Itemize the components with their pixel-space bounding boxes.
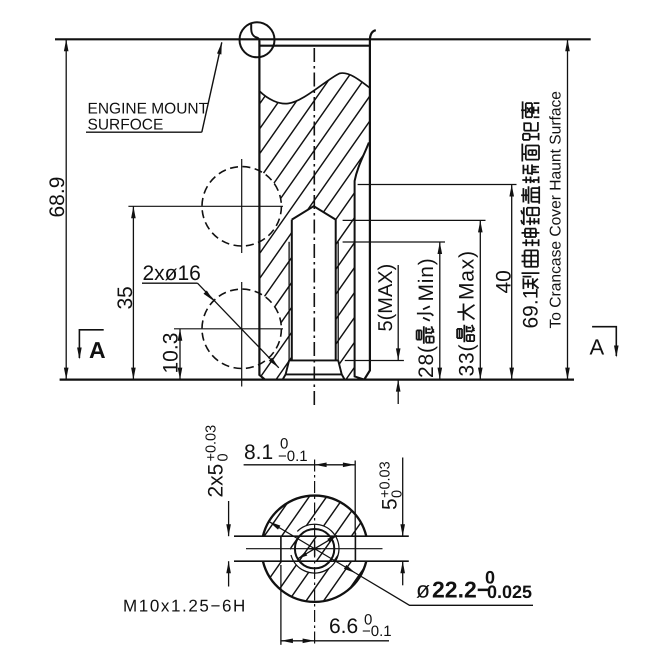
svg-text:0.025: 0.025 <box>487 582 532 602</box>
svg-text:ENGINE MOUNT: ENGINE MOUNT <box>88 101 209 118</box>
svg-text:69.1: 69.1 <box>520 288 543 329</box>
svg-text:ø: ø <box>416 577 430 603</box>
svg-text:0: 0 <box>216 453 232 461</box>
svg-text:A: A <box>590 335 605 360</box>
svg-text:To Crancase Cover Haunt Surfac: To Crancase Cover Haunt Surface <box>548 91 565 328</box>
svg-text:35: 35 <box>114 286 137 309</box>
svg-text:5(MAX): 5(MAX) <box>375 264 397 332</box>
svg-text:33(: 33( <box>455 344 478 377</box>
svg-text:SURFOCE: SURFOCE <box>88 117 164 134</box>
svg-text:2xø16: 2xø16 <box>143 262 201 285</box>
svg-text:A: A <box>89 337 106 363</box>
svg-text:Max): Max) <box>455 250 478 300</box>
svg-text:Min): Min) <box>415 257 438 301</box>
svg-text:−0.1: −0.1 <box>278 448 308 465</box>
svg-text:−0.1: −0.1 <box>362 623 392 640</box>
svg-text:M10x1.25−6H: M10x1.25−6H <box>123 597 247 616</box>
svg-text:8.1: 8.1 <box>244 441 273 464</box>
svg-text:2x5: 2x5 <box>205 464 228 498</box>
svg-text:68.9: 68.9 <box>46 177 69 218</box>
svg-text:5: 5 <box>379 498 402 510</box>
svg-text:10.3: 10.3 <box>159 333 182 374</box>
svg-text:40: 40 <box>493 270 516 293</box>
svg-text:22.2−: 22.2− <box>432 577 490 603</box>
svg-text:0: 0 <box>390 490 406 498</box>
svg-text:28(: 28( <box>415 345 438 378</box>
svg-text:6.6: 6.6 <box>329 615 358 638</box>
